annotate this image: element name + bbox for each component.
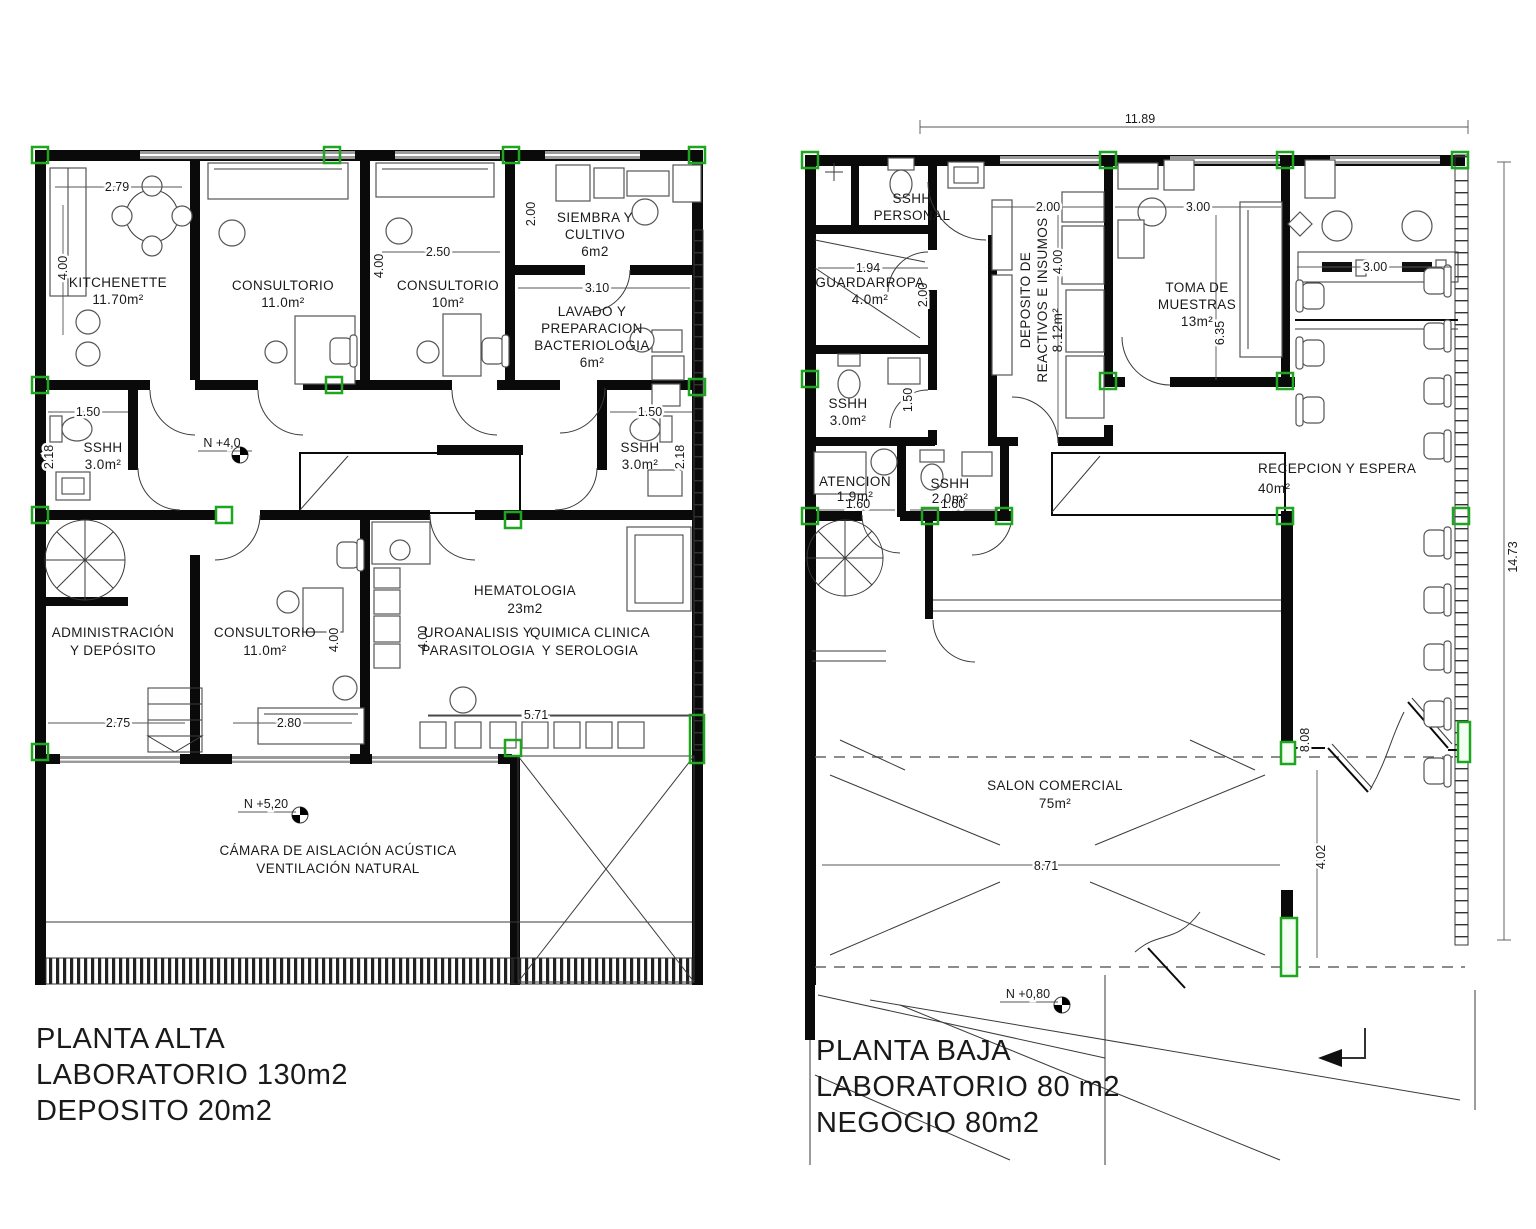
floor-plan-drawing: 2.79 4.00 2.50 4.00 2.00 3.10 1.50 2.18 … [0, 0, 1536, 1229]
room-label: SSHH [892, 191, 931, 206]
room-label: CONSULTORIO [232, 278, 334, 293]
dim: 6.35 [1213, 321, 1227, 345]
dim: 2.79 [105, 180, 129, 194]
toilet [838, 354, 860, 366]
exam-bed [376, 163, 494, 197]
dim: 4.00 [1051, 250, 1065, 274]
plan-subtitle: LABORATORIO 80 m2 [816, 1071, 1120, 1103]
note: CÁMARA DE AISLACIÓN ACÚSTICA [219, 843, 456, 858]
room-area: 2.0m² [932, 491, 969, 506]
room-label: REACTIVOS E INSUMOS [1035, 217, 1050, 382]
room-label: Y DEPÓSITO [70, 643, 156, 658]
room-label: PERSONAL [874, 208, 951, 223]
room-area: 11.0m² [243, 643, 287, 658]
room-area: 4.0m² [852, 292, 889, 307]
dim: 2.18 [673, 445, 687, 469]
room-label: ADMINISTRACIÓN [52, 625, 175, 640]
room-label: TOMA DE [1165, 280, 1228, 295]
toilet [888, 158, 914, 170]
dim: 14.73 [1506, 541, 1520, 572]
room-area: 23m2 [507, 601, 542, 616]
room-label: HEMATOLOGIA [474, 583, 576, 598]
dim: 1.50 [76, 405, 100, 419]
room-label: DEPOSITO DE [1018, 252, 1033, 348]
dim: 4.02 [1314, 845, 1328, 869]
planta-alta: 2.79 4.00 2.50 4.00 2.00 3.10 1.50 2.18 … [32, 147, 705, 1127]
room-label: Y SEROLOGIA [542, 643, 638, 658]
room-label: CONSULTORIO [397, 278, 499, 293]
level-mark: N +0,80 [1006, 987, 1050, 1001]
fridge [1066, 290, 1104, 352]
room-area: 6m2 [581, 244, 608, 259]
dim: 2.50 [426, 245, 450, 259]
room-label: SIEMBRA Y [557, 210, 633, 225]
room-label: CULTIVO [565, 227, 625, 242]
room-label: MUESTRAS [1158, 297, 1236, 312]
exam-bed [1240, 202, 1282, 357]
dim: 5.71 [524, 708, 548, 722]
room-label: SSHH [620, 440, 659, 455]
dim: 2.00 [524, 202, 538, 226]
room-label: SSHH [83, 440, 122, 455]
dim: 2.18 [42, 445, 56, 469]
room-area: 11.70m² [92, 292, 143, 307]
entry-arrow [1340, 1028, 1365, 1058]
level-mark: N +4,0 [203, 436, 240, 450]
dim: 3.00 [1186, 200, 1210, 214]
alta-title: PLANTA ALTA LABORATORIO 130m2 DEPOSITO 2… [36, 1023, 348, 1127]
room-label: LAVADO Y [558, 304, 626, 319]
plan-subtitle: LABORATORIO 130m2 [36, 1059, 348, 1091]
baja-levels: N +0,80 [1000, 987, 1070, 1013]
room-label: CONSULTORIO [214, 625, 316, 640]
room-area: 3.0m² [830, 413, 867, 428]
room-area: 10m² [432, 295, 464, 310]
dim: 8.71 [1034, 859, 1058, 873]
room-area: 3.0m² [85, 457, 122, 472]
room-label: SSHH [828, 396, 867, 411]
room-area: 75m² [1039, 796, 1071, 811]
room-area: 40m² [1258, 481, 1290, 496]
dim: 1.50 [901, 388, 915, 412]
room-label: KITCHENETTE [69, 275, 167, 290]
plan-subtitle: DEPOSITO 20m2 [36, 1095, 272, 1127]
cabinet [627, 527, 691, 611]
room-area: 1.9m² [837, 489, 874, 504]
room-area: 11.0m² [261, 295, 305, 310]
room-area: 6m² [580, 355, 605, 370]
note: VENTILACIÓN NATURAL [256, 861, 419, 876]
dim: 4.00 [327, 628, 341, 652]
room-area: 8.12m² [1050, 308, 1065, 353]
room-label: QUIMICA CLINICA [530, 625, 650, 640]
room-label: ATENCION [819, 474, 891, 489]
dim: 4.00 [372, 254, 386, 278]
planta-baja: 11.89 1.94 2.00 1.50 2.00 4.00 3.00 6.35… [802, 112, 1520, 1165]
room-label: RECEPCION Y ESPERA [1258, 461, 1416, 476]
room-area: 3.0m² [622, 457, 659, 472]
dim: 1.94 [856, 261, 880, 275]
dim: 11.89 [1125, 112, 1155, 126]
desk [443, 314, 481, 376]
room-area: 13m² [1181, 314, 1213, 329]
plan-subtitle: NEGOCIO 80m2 [816, 1107, 1040, 1139]
dim: 3.00 [1363, 260, 1387, 274]
baja-lines [812, 163, 1475, 1165]
toilet [50, 416, 62, 442]
room-label: GUARDARROPA [815, 275, 924, 290]
toilet [660, 416, 672, 442]
exam-bed [258, 708, 364, 744]
dim: 1.50 [638, 405, 662, 419]
room-label: UROANALISIS Y [424, 625, 533, 640]
floor-plan-sheet: 2.79 4.00 2.50 4.00 2.00 3.10 1.50 2.18 … [0, 0, 1536, 1229]
exam-bed [208, 163, 348, 199]
room-label: SALON COMERCIAL [987, 778, 1123, 793]
dim: 4.00 [56, 256, 70, 280]
level-mark: N +5,20 [244, 797, 288, 811]
round-table [126, 190, 178, 242]
baja-title: PLANTA BAJA LABORATORIO 80 m2 NEGOCIO 80… [816, 1035, 1120, 1139]
toilet [920, 450, 944, 462]
fridge [1066, 356, 1104, 418]
plan-title: PLANTA ALTA [36, 1023, 225, 1055]
room-label: PREPARACION [541, 321, 643, 336]
room-label: BACTERIOLOGIA [534, 338, 649, 353]
room-label: SSHH [930, 476, 969, 491]
dim: 3.10 [585, 281, 609, 295]
dim: 2.00 [1036, 200, 1060, 214]
dim: 8.08 [1298, 728, 1312, 752]
plan-title: PLANTA BAJA [816, 1035, 1011, 1067]
dim: 2.75 [106, 716, 130, 730]
dim: 2.80 [277, 716, 301, 730]
room-label: PARASITOLOGIA [421, 643, 534, 658]
